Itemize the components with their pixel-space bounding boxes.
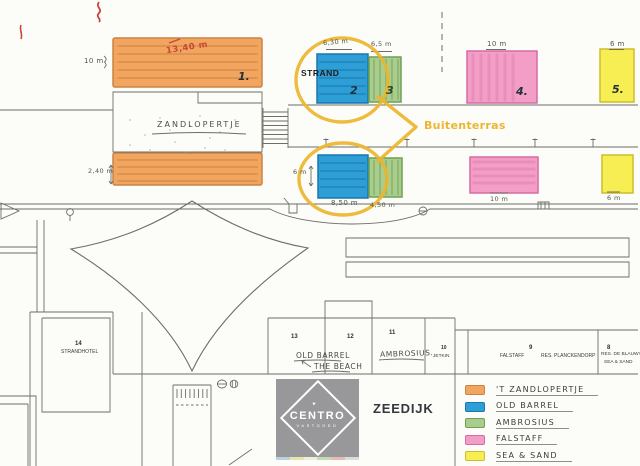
side-street [0, 220, 44, 312]
legend-row-ambrosius: AMBROSIUS [465, 415, 598, 432]
measure-yellow-bottom-width: 6 m [607, 195, 621, 202]
old-barrel-terrace-bottom [318, 155, 368, 198]
old-barrel-note: OLD BARREL [296, 352, 350, 360]
legend-row-old-barrel: OLD BARREL [465, 399, 598, 416]
ramp [173, 385, 211, 466]
legend-swatch-yellow [465, 451, 485, 461]
lamp-icon [67, 209, 74, 216]
legend-swatch-pink [465, 435, 485, 445]
measure-pink-bottom-width: 10 m [490, 196, 508, 203]
centro-logo: ▸ CENTRO VASTGOED [276, 379, 359, 460]
strip-segment [317, 457, 331, 460]
long-building [346, 238, 629, 277]
strand-label: STRAND [301, 69, 339, 78]
zandlopertje-building-label: ZANDLOPERTJE [157, 121, 242, 129]
building-number-13: 13 [291, 334, 298, 340]
building-name-sea-sand: SEA & SAND [604, 361, 633, 366]
the-beach-note: THE BEACH [314, 363, 363, 371]
building-name-blauwvoet: RES. DE BLAUWV [601, 353, 640, 358]
building-number-14: 14 [75, 341, 82, 347]
measure-green-bottom-width: 4,50 m [370, 202, 395, 209]
measure-blue-bottom-width: 8,50 m [331, 200, 358, 207]
legend-label: FALSTAFF [496, 434, 557, 445]
unit-number-5: 5. [612, 84, 624, 95]
building-name-jetkin: JETKIN [433, 355, 450, 360]
building-number-9: 9 [529, 345, 532, 351]
strip-segment [290, 457, 304, 460]
legend-row-sea-sand: SEA & SAND [465, 448, 598, 465]
bin-icon [284, 198, 297, 213]
legend-swatch-green [465, 418, 485, 428]
star-canopy [71, 201, 308, 371]
strip-segment [331, 457, 345, 460]
beach-arrow [302, 361, 311, 368]
logo-subtitle: VASTGOED [276, 423, 359, 428]
sea-sand-terrace-bottom [602, 155, 633, 193]
stairs [263, 108, 288, 148]
strip-segment [345, 457, 359, 460]
logo-brand: CENTRO [276, 410, 359, 422]
site-plan: 10 m 13,40 m 6,30 m 6,5 m 10 m 6 m 2,40 … [0, 0, 640, 466]
legend-swatch-blue [465, 402, 485, 412]
legend-row-zandlopertje: 'T ZANDLOPERTJE [465, 382, 598, 399]
building-number-10: 10 [441, 346, 447, 351]
legend: 'T ZANDLOPERTJE OLD BARREL AMBROSIUS FAL… [465, 382, 598, 465]
legend-swatch-orange [465, 385, 485, 395]
building-name-strandhotel: STRANDHOTEL [61, 350, 98, 355]
buitenterras-label: Buitenterras [424, 120, 506, 131]
building-number-11: 11 [389, 330, 395, 336]
legend-label: 'T ZANDLOPERTJE [496, 385, 598, 396]
measure-yellow-top-width: 6 m [610, 41, 625, 48]
building-number-12: 12 [347, 334, 354, 340]
unit-number-3: 3 [386, 85, 394, 96]
building-name-planckendorp: RES. PLANCKENDORP [541, 354, 595, 359]
legend-row-falstaff: FALSTAFF [465, 432, 598, 449]
unit-number-1: 1. [238, 71, 250, 82]
unit-number-4: 4. [516, 86, 528, 97]
strip-segment [304, 457, 318, 460]
measure-orange-bottom-height: 2,40 m [88, 168, 113, 175]
measure-orange-height: 10 m [84, 58, 104, 65]
measure-blue-bottom-height: 6 m [293, 169, 307, 176]
legend-label: AMBROSIUS [496, 418, 569, 429]
building-name-falstaff: FALSTAFF [500, 354, 524, 359]
bench-icon [538, 202, 549, 209]
strip-segment [276, 457, 290, 460]
building-number-8: 8 [607, 345, 610, 351]
highlight-chevron [378, 97, 416, 161]
red-pen-marks [20, 2, 180, 43]
zeedijk-title: ZEEDIJK [373, 402, 434, 415]
legend-label: OLD BARREL [496, 401, 573, 412]
grate-icon [230, 380, 238, 388]
legend-label: SEA & SAND [496, 451, 572, 462]
unit-number-2: 2 [350, 85, 358, 96]
promenade-wedge-icon [1, 203, 19, 219]
logo-color-strip [276, 457, 359, 460]
measure-pink-top-width: 10 m [487, 41, 507, 48]
measure-green-top-width: 6,5 m [371, 41, 392, 48]
ambrosius-note: AMBROSIUS. [380, 349, 434, 358]
strandhotel-outline [30, 312, 113, 466]
